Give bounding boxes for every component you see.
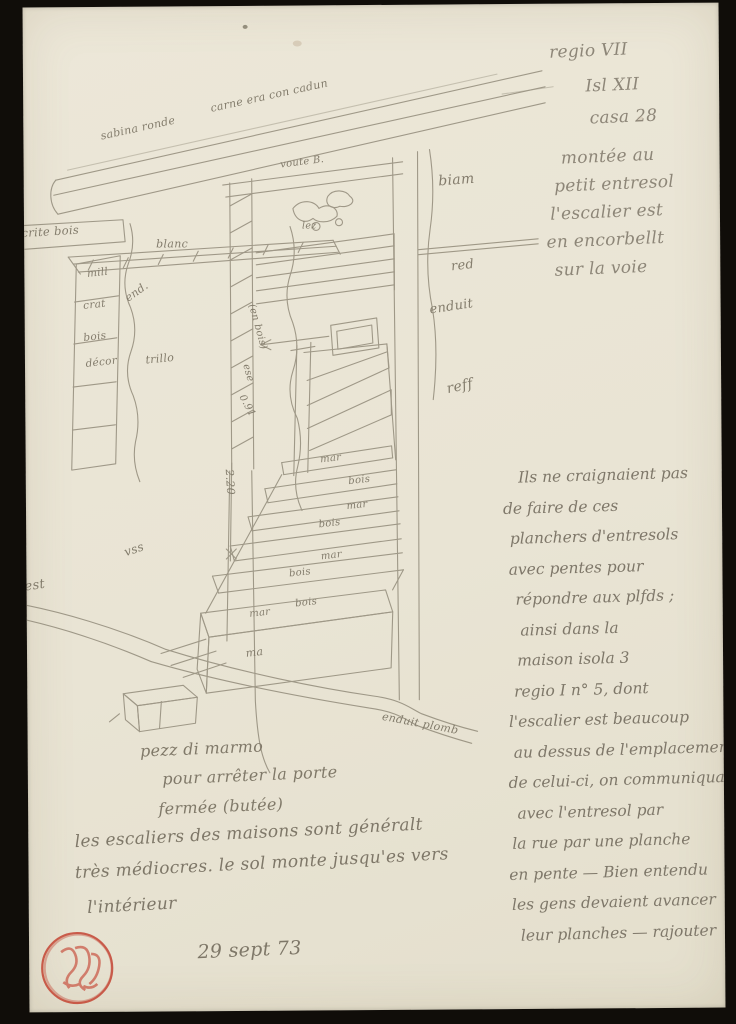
step-material-label: mar bbox=[346, 499, 368, 512]
right-wall-label: biam bbox=[438, 171, 475, 190]
plaster-label: trillo bbox=[145, 351, 175, 367]
right-wall-label: red bbox=[450, 257, 475, 274]
red-collector-stamp bbox=[42, 933, 112, 1003]
paper-stain bbox=[293, 40, 302, 46]
header-note-regio: regio VII bbox=[549, 39, 628, 62]
paper-stain bbox=[243, 25, 248, 29]
pilaster-row-label: bois bbox=[83, 329, 107, 343]
dimension-label: 2.20 bbox=[223, 469, 238, 495]
step-material-label: ma bbox=[245, 645, 264, 660]
scanned-sketchbook-page: regio VII Isl XII casa 28 montée au peti… bbox=[0, 0, 736, 1024]
side-paragraph-line: de celui-ci, on communiquait bbox=[508, 761, 725, 798]
stones-label: lez bbox=[302, 220, 317, 231]
pilaster-row-label: mill bbox=[86, 266, 108, 280]
step-material-label: mar bbox=[249, 607, 271, 620]
side-paragraph: Ils ne craignaient pas de faire de ces p… bbox=[500, 456, 726, 951]
step-material-label: mar bbox=[320, 549, 342, 562]
step-material-label: mar bbox=[320, 452, 342, 465]
plaster-label: blanc bbox=[156, 237, 188, 250]
header-note-line: sur la voie bbox=[554, 257, 648, 281]
header-note-casa: casa 28 bbox=[589, 106, 657, 129]
side-paragraph-line: leur planches — rajouter bbox=[520, 914, 725, 951]
date-note: 29 sept 73 bbox=[197, 937, 302, 963]
pilaster-row-label: crat bbox=[83, 298, 107, 312]
header-note-line: montée au bbox=[560, 145, 654, 169]
paper-sheet: regio VII Isl XII casa 28 montée au peti… bbox=[23, 3, 726, 1013]
header-note-insula: Isl XII bbox=[585, 74, 640, 96]
